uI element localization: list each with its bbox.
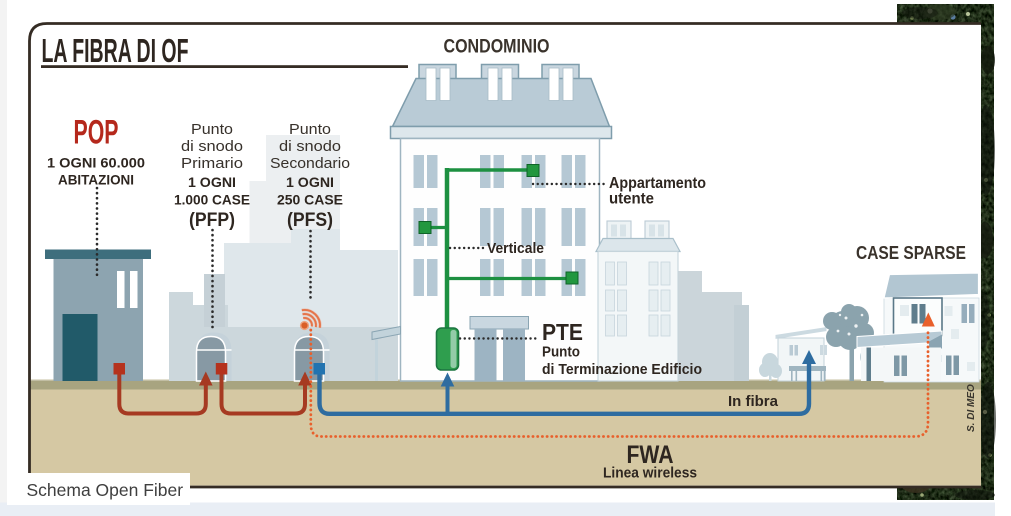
svg-text:Punto: Punto (191, 122, 233, 138)
svg-text:LA FIBRA DI OF: LA FIBRA DI OF (42, 33, 189, 70)
svg-text:Punto: Punto (289, 122, 331, 138)
svg-text:1 OGNI: 1 OGNI (286, 175, 334, 190)
svg-text:POP: POP (74, 114, 119, 152)
svg-text:Linea wireless: Linea wireless (603, 466, 697, 482)
svg-text:Verticale: Verticale (487, 240, 544, 257)
svg-text:CONDOMINIO: CONDOMINIO (444, 37, 550, 58)
svg-text:di Terminazione Edificio: di Terminazione Edificio (542, 362, 702, 378)
svg-text:Punto: Punto (542, 345, 580, 361)
svg-text:di snodo: di snodo (279, 139, 341, 155)
svg-text:Appartamento: Appartamento (609, 175, 706, 192)
svg-text:S. DI MEO: S. DI MEO (966, 384, 977, 432)
svg-text:utente: utente (609, 191, 654, 208)
svg-text:1 OGNI: 1 OGNI (188, 175, 236, 190)
svg-text:Schema Open Fiber: Schema Open Fiber (27, 480, 184, 500)
svg-text:250 CASE: 250 CASE (277, 193, 343, 208)
svg-text:PTE: PTE (542, 319, 583, 345)
svg-text:di snodo: di snodo (181, 139, 243, 155)
svg-text:Secondario: Secondario (270, 156, 350, 172)
svg-text:CASE SPARSE: CASE SPARSE (856, 243, 966, 263)
svg-text:Primario: Primario (181, 156, 243, 172)
svg-text:(PFS): (PFS) (287, 210, 333, 231)
svg-text:(PFP): (PFP) (189, 210, 235, 231)
svg-text:1 OGNI 60.000: 1 OGNI 60.000 (47, 155, 145, 171)
svg-text:1.000 CASE: 1.000 CASE (174, 193, 250, 208)
svg-text:In fibra: In fibra (728, 393, 779, 410)
svg-text:ABITAZIONI: ABITAZIONI (58, 172, 134, 188)
